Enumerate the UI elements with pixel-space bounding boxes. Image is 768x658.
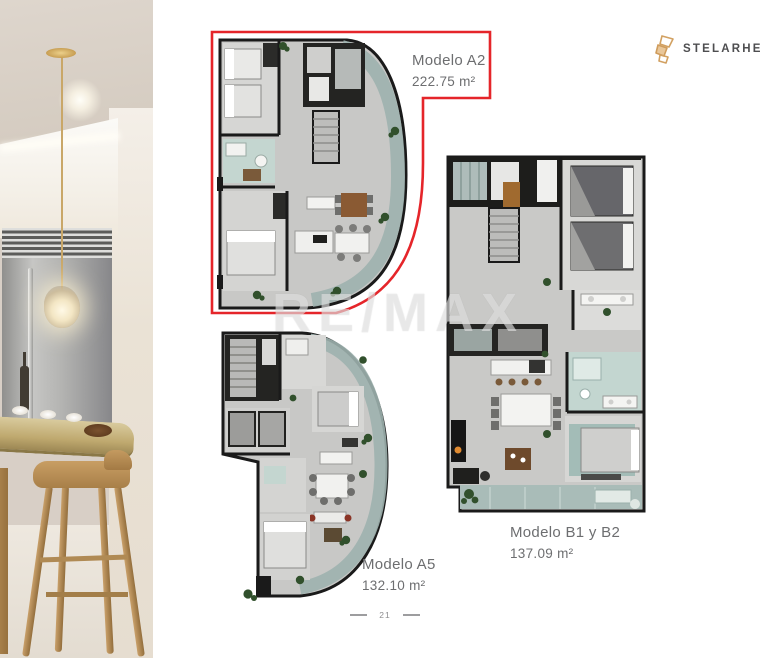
plan-a5-name: Modelo A5	[362, 554, 436, 576]
pendant-cord	[61, 56, 63, 292]
brand-name: STELARHE	[683, 43, 763, 55]
bowl	[40, 410, 56, 419]
plan-label-b1-b2: Modelo B1 y B2 137.09 m²	[510, 522, 620, 563]
bottle-neck	[23, 352, 26, 368]
page-number-dash-right	[403, 614, 420, 616]
plan-a5-area: 132.10 m²	[362, 576, 436, 596]
pendant-lamp	[44, 286, 80, 328]
wood-bowl	[84, 424, 112, 437]
plan-a2-name: Modelo A2	[412, 50, 486, 72]
fridge-grill	[2, 228, 112, 258]
bar-stool-backrest	[104, 450, 132, 470]
pendant-canopy	[46, 48, 76, 58]
plan-a2-area: 222.75 m²	[412, 72, 486, 92]
plan-label-a2: Modelo A2 222.75 m²	[412, 50, 486, 91]
bowl	[12, 406, 28, 415]
plan-label-a5: Modelo A5 132.10 m²	[362, 554, 436, 595]
brochure-page: STELARHE	[0, 0, 768, 658]
bowl	[66, 413, 82, 422]
page-number: 21	[335, 610, 435, 620]
fridge-handle	[28, 268, 33, 436]
stelarhe-logo: STELARHE	[652, 34, 763, 64]
photo-ceiling-spotlight	[58, 78, 102, 122]
page-number-value: 21	[379, 610, 390, 620]
bar-stool-partial	[0, 468, 8, 654]
stool-rail	[46, 592, 128, 597]
page-number-dash-left	[350, 614, 367, 616]
floorplan-b1-b2	[445, 154, 647, 514]
plan-b1-b2-area: 137.09 m²	[510, 544, 620, 564]
stelarhe-logo-icon	[652, 34, 676, 64]
interior-photo	[0, 0, 153, 658]
plan-b1-b2-name: Modelo B1 y B2	[510, 522, 620, 544]
